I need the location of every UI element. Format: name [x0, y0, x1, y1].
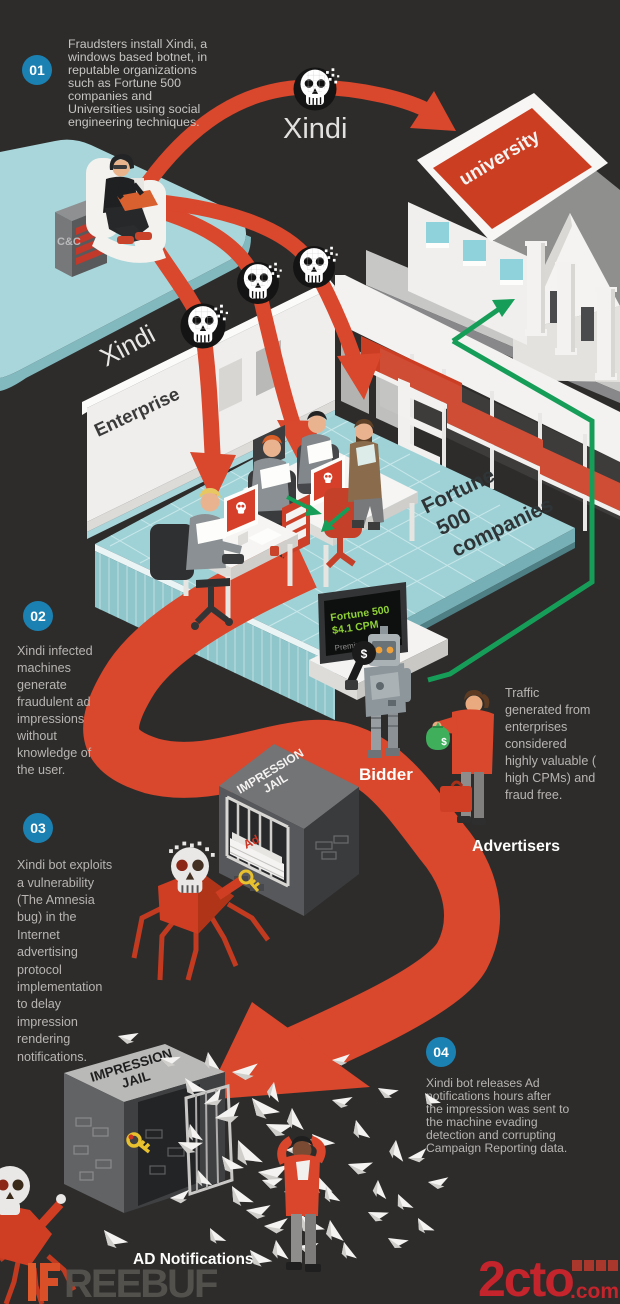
svg-text:generated from: generated from [505, 703, 590, 717]
svg-text:protocol: protocol [17, 963, 62, 977]
svg-text:such as Fortune 500: such as Fortune 500 [68, 76, 181, 90]
svg-text:notifications.: notifications. [17, 1050, 87, 1064]
svg-text:highly valuable (: highly valuable ( [505, 754, 597, 768]
svg-text:02: 02 [30, 608, 46, 624]
svg-text:knowledge of: knowledge of [17, 746, 92, 760]
svg-text:Bidder: Bidder [359, 765, 413, 784]
svg-text:enterprises: enterprises [505, 720, 567, 734]
svg-text:implementation: implementation [17, 980, 102, 994]
svg-text:Xindi bot releases Ad: Xindi bot releases Ad [426, 1076, 540, 1090]
svg-text:04: 04 [433, 1044, 449, 1060]
svg-text:fraudulent ad: fraudulent ad [17, 695, 91, 709]
svg-text:Advertisers: Advertisers [472, 838, 560, 855]
svg-text:$: $ [441, 737, 447, 748]
svg-text:advertising: advertising [17, 945, 78, 959]
svg-text:impression: impression [17, 1015, 78, 1029]
svg-text:fraud free.: fraud free. [505, 788, 562, 802]
svg-text:Universities using social: Universities using social [68, 102, 200, 116]
svg-text:rendering: rendering [17, 1032, 70, 1046]
svg-text:machines: machines [17, 661, 71, 675]
svg-text:Internet: Internet [17, 928, 60, 942]
svg-text:Xindi: Xindi [283, 113, 348, 145]
svg-text:a vulnerability: a vulnerability [17, 876, 95, 890]
svg-text:01: 01 [29, 62, 45, 78]
svg-text:the user.: the user. [17, 763, 65, 777]
svg-text:(The Amnesia: (The Amnesia [17, 893, 95, 907]
svg-text:the impression was sent to: the impression was sent to [426, 1102, 569, 1116]
svg-text:Fraudsters install Xindi, a: Fraudsters install Xindi, a [68, 37, 207, 51]
svg-text:Traffic: Traffic [505, 686, 539, 700]
svg-text:2cto: 2cto [478, 1251, 573, 1304]
svg-text:Campaign Reporting data.: Campaign Reporting data. [426, 1141, 567, 1155]
svg-text:considered: considered [505, 737, 567, 751]
svg-text:windows based botnet, in: windows based botnet, in [67, 50, 207, 64]
svg-text:notifications hours after: notifications hours after [426, 1089, 551, 1103]
svg-text:reputable organizations: reputable organizations [68, 63, 197, 77]
svg-text:bug) in the: bug) in the [17, 910, 77, 924]
svg-text:generate: generate [17, 678, 67, 692]
svg-text:Xindi bot exploits: Xindi bot exploits [17, 858, 112, 872]
svg-text:to delay: to delay [17, 997, 62, 1011]
svg-text:high CPMs) and: high CPMs) and [505, 771, 595, 785]
svg-text:REEBUF: REEBUF [64, 1262, 217, 1304]
svg-text:C&C: C&C [57, 236, 81, 248]
svg-text:without: without [16, 729, 57, 743]
svg-text:Xindi infected: Xindi infected [17, 644, 93, 658]
svg-text:03: 03 [30, 820, 46, 836]
svg-text:engineering techniques.: engineering techniques. [68, 115, 200, 129]
svg-text:detection and corrupting: detection and corrupting [426, 1128, 556, 1142]
svg-text:companies and: companies and [68, 89, 152, 103]
svg-text:impressions: impressions [17, 712, 84, 726]
svg-text:$: $ [361, 647, 368, 661]
svg-text:the machine evading: the machine evading [426, 1115, 538, 1129]
svg-text:.com: .com [570, 1280, 619, 1303]
